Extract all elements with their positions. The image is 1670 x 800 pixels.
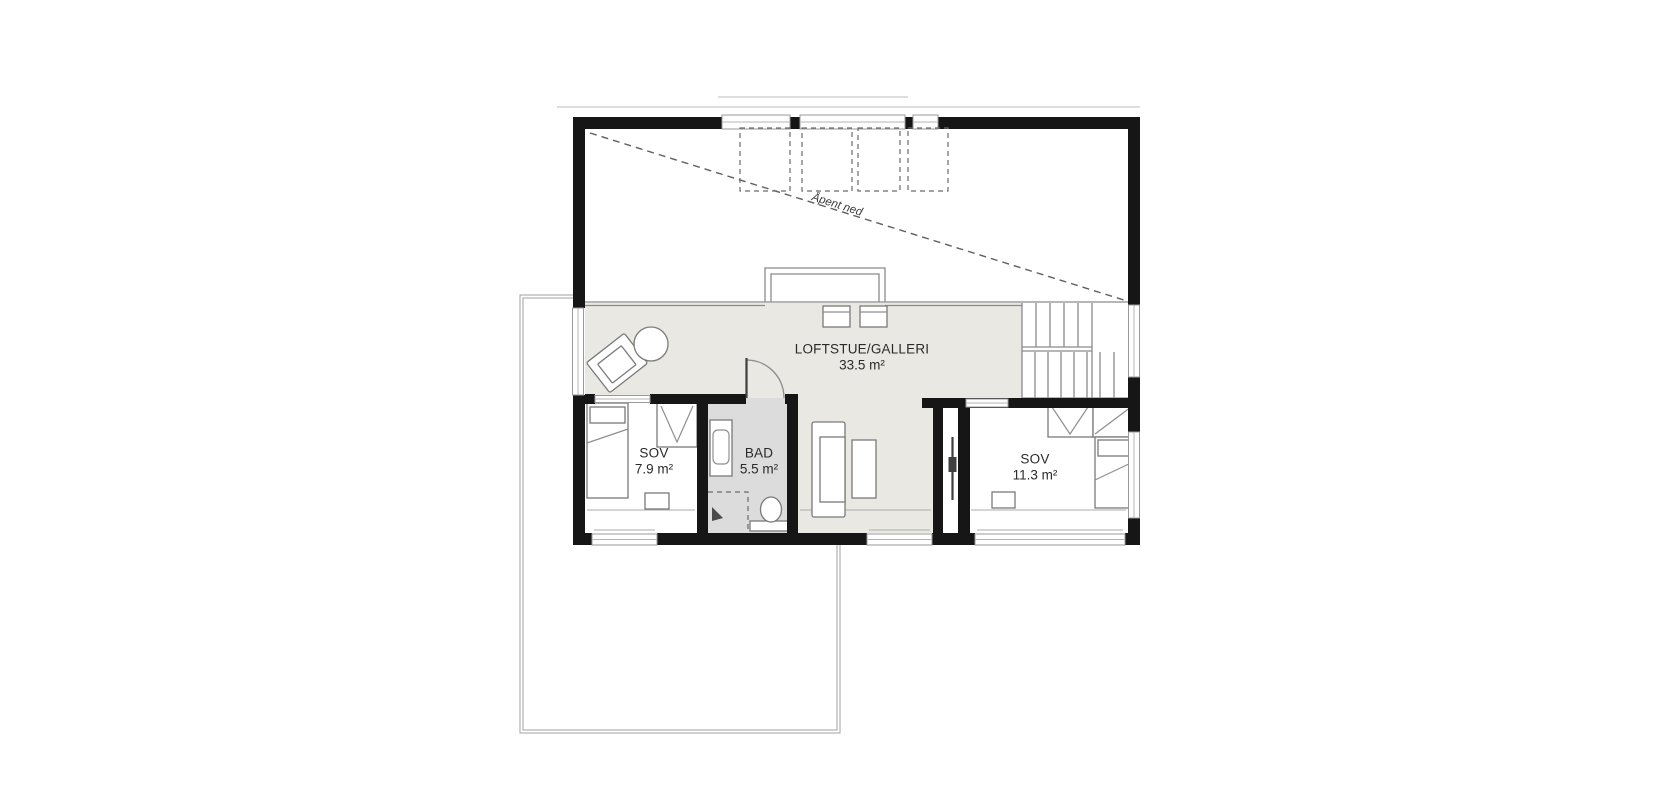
room-name: LOFTSTUE/GALLERI bbox=[795, 342, 929, 358]
room-name: BAD bbox=[740, 446, 778, 462]
room-area: 33.5 m² bbox=[795, 357, 929, 373]
sliding-door-icon bbox=[966, 399, 1008, 407]
room-label-loftstue: LOFTSTUE/GALLERI 33.5 m² bbox=[795, 342, 929, 373]
room-label-bad: BAD 5.5 m² bbox=[740, 446, 778, 477]
room-label-sov-2: SOV 11.3 m² bbox=[1013, 452, 1058, 483]
room-name: SOV bbox=[1013, 452, 1058, 468]
bed-icon bbox=[1095, 437, 1133, 508]
room-name: SOV bbox=[635, 446, 673, 462]
wardrobe-icon bbox=[657, 403, 697, 447]
room-area: 5.5 m² bbox=[740, 461, 778, 477]
nightstand-icon bbox=[645, 493, 669, 509]
wardrobe-icon bbox=[1048, 405, 1133, 437]
bed-icon bbox=[587, 403, 628, 498]
sofa-icon bbox=[812, 422, 845, 517]
stool-icon bbox=[860, 306, 887, 327]
stool-icon bbox=[823, 306, 850, 327]
floor-plan-page: Åpent ned LOFTSTUE/GALLERI 33.5 m² SOV 7… bbox=[0, 0, 1670, 800]
coffee-table-icon bbox=[852, 440, 876, 498]
roof-outline bbox=[557, 97, 1140, 113]
nightstand-icon bbox=[992, 492, 1015, 508]
sliding-door-icon bbox=[595, 396, 650, 403]
floor-plan-drawing bbox=[0, 0, 1670, 800]
round-table-icon bbox=[634, 327, 668, 361]
room-area: 7.9 m² bbox=[635, 461, 673, 477]
sink-icon bbox=[710, 420, 732, 476]
room-label-sov-1: SOV 7.9 m² bbox=[635, 446, 673, 477]
room-area: 11.3 m² bbox=[1013, 467, 1058, 483]
